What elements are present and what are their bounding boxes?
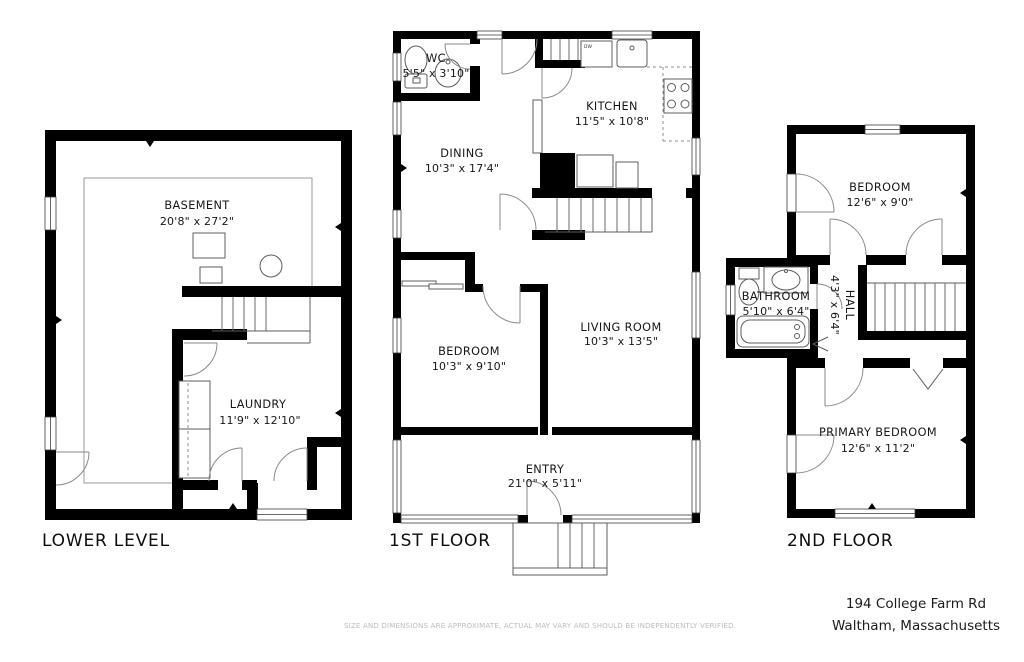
front-door-opening: [528, 515, 563, 523]
laundry-label: LAUNDRY: [230, 398, 287, 411]
second-floor-plan: BEDROOM 12'6" x 9'0" BATHROOM 5'10" x 6'…: [726, 125, 975, 551]
interior-wall: [247, 483, 258, 509]
kitchen-sink: [617, 40, 647, 67]
first-floor-title: 1ST FLOOR: [389, 531, 491, 551]
main-stairs: [545, 198, 652, 232]
second-floor-title: 2ND FLOOR: [787, 531, 893, 551]
wc-label: WC: [426, 52, 446, 65]
interior-wall: [307, 437, 317, 490]
interior-wall: [787, 255, 975, 265]
door-recess: [787, 435, 796, 473]
chimney: [540, 153, 575, 192]
bathroom-dims: 5'10" x 6'4": [742, 305, 809, 318]
doorway-opening: [830, 255, 866, 265]
lower-level-title: LOWER LEVEL: [42, 531, 170, 551]
laundry-bottom-door-right: [274, 448, 307, 481]
floor-plan-canvas: BASEMENT 20'8" x 27'2" LAUNDRY 11'9" x 1…: [0, 0, 1024, 662]
interior-wall: [393, 93, 480, 101]
dining-label: DINING: [440, 147, 483, 160]
bathroom-label: BATHROOM: [742, 290, 811, 303]
basement-stairs-down: [551, 39, 578, 60]
bedroom-label: BEDROOM: [438, 345, 500, 358]
second-floor-stairs: [867, 283, 966, 331]
primary-entry-door: [825, 368, 863, 406]
hall-dims: 4'3" x 6'4": [828, 275, 841, 335]
dishwasher-label: DW: [584, 44, 592, 50]
kitchen-label: KITCHEN: [586, 100, 638, 113]
address-line2: Waltham, Massachusetts: [832, 618, 1000, 634]
bedroom-closet-doors: [402, 281, 463, 289]
kitchen-dims: 11'5" x 10'8": [575, 115, 649, 128]
exterior-wall: [45, 130, 352, 141]
primary-bedroom-dims: 12'6" x 11'2": [841, 442, 915, 455]
primary-bedroom-label: PRIMARY BEDROOM: [819, 426, 937, 439]
refrigerator: [577, 155, 613, 187]
exterior-wall: [393, 31, 700, 39]
doorway-opening: [470, 44, 480, 66]
dimension-markers: [401, 164, 624, 433]
first-floor-windows: [393, 31, 700, 523]
interior-wall: [787, 358, 975, 368]
water-tank: [260, 255, 282, 277]
laundry-bottom-door-left: [209, 448, 242, 481]
living-room-dims: 10'3" x 13'5": [584, 335, 658, 348]
interior-wall: [172, 483, 183, 509]
wall-jamb: [686, 188, 700, 198]
furnace: [193, 233, 225, 283]
bedroom2-label: BEDROOM: [849, 181, 911, 194]
entry-dims: 21'0" x 5'11": [508, 477, 582, 490]
cased-opening: [533, 100, 542, 153]
kitchen-door: [542, 68, 572, 98]
exterior-wall: [45, 130, 56, 520]
dimension-markers: [868, 189, 966, 509]
basement-dims: 20'8" x 27'2": [160, 215, 234, 228]
laundry-door: [184, 343, 217, 376]
exterior-wall: [341, 130, 352, 520]
interior-wall: [540, 284, 548, 435]
laundry-dims: 11'9" x 12'10": [219, 414, 300, 427]
primary-closet-bifold: [913, 369, 943, 389]
exterior-wall: [787, 358, 796, 509]
basement-stair-door: [502, 39, 537, 74]
exterior-wall: [966, 125, 975, 518]
bedroom2-dims: 12'6" x 9'0": [846, 196, 913, 209]
floor-plan-page: BASEMENT 20'8" x 27'2" LAUNDRY 11'9" x 1…: [0, 0, 1024, 662]
disclaimer-text: SIZE AND DIMENSIONS ARE APPROXIMATE, ACT…: [344, 622, 736, 630]
interior-wall: [182, 286, 343, 297]
bedroom-dims: 10'3" x 9'10": [432, 360, 506, 373]
first-floor-plan: DW: [389, 31, 700, 575]
dining-dims: 10'3" x 17'4": [425, 162, 499, 175]
interior-wall: [535, 60, 585, 68]
bedroom-closet-door: [906, 219, 942, 255]
address-line1: 194 College Farm Rd: [846, 596, 986, 612]
cabinet: [616, 162, 638, 188]
washer-dryer: [179, 381, 210, 478]
first-floor-walls: [393, 31, 700, 523]
living-room-label: LIVING ROOM: [580, 321, 661, 334]
entry-steps: [513, 523, 607, 575]
entry-label: ENTRY: [526, 463, 565, 476]
basement-label: BASEMENT: [164, 199, 229, 212]
interior-wall: [858, 265, 867, 331]
interior-wall: [393, 252, 475, 260]
primary-left-door: [796, 435, 834, 473]
footer: SIZE AND DIMENSIONS ARE APPROXIMATE, ACT…: [344, 596, 1000, 634]
bathtub: [737, 316, 809, 347]
stair-hall-door: [500, 194, 536, 230]
stove: [664, 79, 692, 113]
closet-opening: [910, 358, 943, 368]
door-recess: [787, 174, 796, 212]
doorway-opening: [825, 358, 863, 368]
bedroom-entry-door: [830, 219, 866, 255]
hall-label: HALL: [843, 290, 856, 321]
doorway-opening: [483, 284, 520, 292]
exterior-wall: [726, 349, 818, 358]
interior-wall: [858, 331, 966, 340]
doorway-opening: [906, 255, 942, 265]
toilet-tank: [739, 268, 759, 279]
wc-dims: 5'5" x 3'10": [402, 67, 469, 80]
bedroom-left-door: [796, 174, 834, 212]
lower-level-plan: BASEMENT 20'8" x 27'2" LAUNDRY 11'9" x 1…: [42, 130, 352, 551]
